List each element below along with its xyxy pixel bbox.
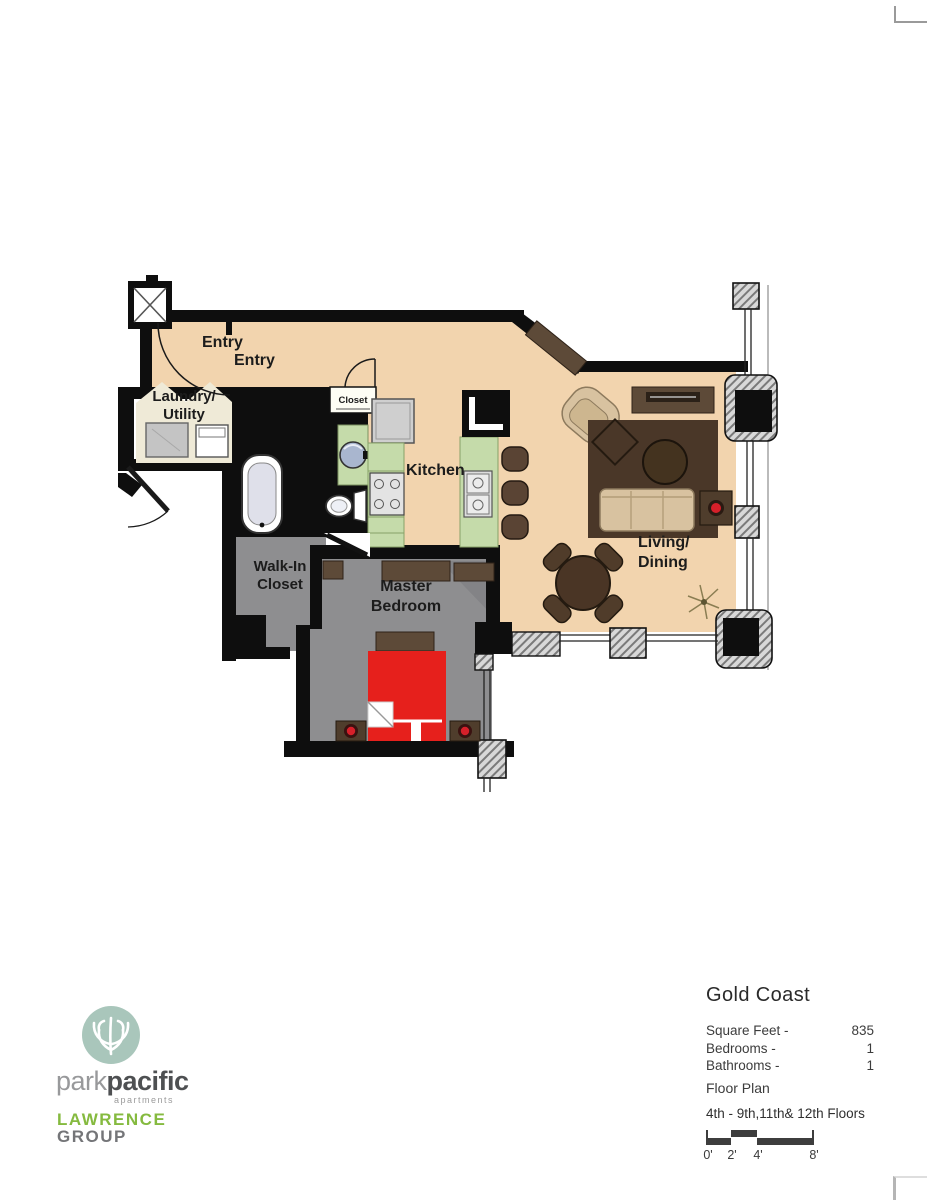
stat-value: 1 bbox=[866, 1040, 874, 1058]
stat-label: Bedrooms - bbox=[706, 1040, 776, 1058]
laundry-label-1: Laundry/ bbox=[152, 388, 216, 405]
dryer bbox=[196, 425, 228, 457]
dresser-left bbox=[323, 561, 343, 579]
corner-column-tr-core bbox=[735, 390, 772, 432]
floor-plan-drawing: Entry Entry Laundry/ Utility Closet Kitc… bbox=[118, 275, 778, 795]
pier-top bbox=[733, 283, 759, 309]
stat-row-bedrooms: Bedrooms - 1 bbox=[706, 1040, 874, 1058]
plan-stats: Square Feet - 835 Bedrooms - 1 Bathrooms… bbox=[706, 1022, 874, 1075]
entry-label-1: Entry bbox=[202, 334, 243, 351]
crop-mark-bottom-right bbox=[893, 1176, 927, 1200]
scale-label-0: 0' bbox=[703, 1148, 712, 1162]
corner-column-br-core bbox=[723, 618, 759, 656]
media-console bbox=[632, 387, 714, 413]
floors-label: 4th - 9th,11th& 12th Floors bbox=[706, 1106, 865, 1121]
washer bbox=[146, 423, 188, 457]
window-lines-right-lower bbox=[747, 538, 753, 612]
wall-entry-left bbox=[140, 322, 152, 390]
stat-label: Bathrooms - bbox=[706, 1057, 780, 1075]
bed-sheet-fold bbox=[411, 721, 421, 741]
bathtub bbox=[242, 455, 282, 533]
scale-segment-2-4 bbox=[731, 1130, 757, 1137]
dining-table bbox=[556, 556, 610, 610]
group-logo-text: GROUP bbox=[57, 1127, 127, 1147]
scale-label-4: 4' bbox=[753, 1148, 762, 1162]
scale-segment-0-2 bbox=[708, 1138, 731, 1145]
floor-plan-label: Floor Plan bbox=[706, 1080, 770, 1096]
stove bbox=[370, 473, 404, 515]
plan-title: Gold Coast bbox=[706, 984, 810, 1007]
brand-wordmark: parkpacific bbox=[56, 1066, 189, 1097]
pier-bay bbox=[478, 740, 506, 778]
pier-mid bbox=[735, 506, 759, 538]
crop-mark-top-right bbox=[894, 6, 927, 23]
scale-bar: 0' 2' 4' 8' bbox=[705, 1130, 835, 1164]
master-label-1: Master bbox=[380, 578, 432, 595]
living-label-1: Living/ bbox=[638, 534, 690, 551]
wall-bedroom-left bbox=[296, 625, 310, 741]
dresser-top-2 bbox=[454, 563, 494, 581]
window-lines-right-mid bbox=[747, 441, 753, 506]
scale-label-2: 2' bbox=[727, 1148, 736, 1162]
stat-value: 1 bbox=[866, 1057, 874, 1075]
walkin-label-2: Closet bbox=[257, 576, 303, 593]
end-table bbox=[700, 491, 732, 525]
window-lines-bottom-1 bbox=[560, 635, 610, 641]
wall-top bbox=[150, 310, 524, 322]
hall-closet-label: Closet bbox=[338, 395, 368, 406]
floor-plan-page: Entry Entry Laundry/ Utility Closet Kitc… bbox=[0, 0, 927, 1200]
pillow bbox=[368, 702, 393, 727]
pantry-unit bbox=[462, 390, 510, 437]
exterior-door-arc bbox=[128, 511, 168, 527]
pier-bottom bbox=[610, 628, 646, 658]
nightstand-left bbox=[336, 721, 366, 741]
laundry-label-2: Utility bbox=[163, 406, 205, 423]
brand-apartments-text: apartments bbox=[114, 1095, 174, 1105]
sofa bbox=[600, 489, 694, 531]
stat-label: Square Feet - bbox=[706, 1022, 789, 1040]
park-pacific-logo bbox=[82, 1006, 140, 1064]
refrigerator bbox=[372, 399, 414, 443]
scale-segment-4-8 bbox=[757, 1138, 812, 1145]
stat-value: 835 bbox=[851, 1022, 874, 1040]
stat-row-square-feet: Square Feet - 835 bbox=[706, 1022, 874, 1040]
island-sink bbox=[464, 471, 492, 517]
scale-tick-8 bbox=[812, 1130, 814, 1145]
bar-stools bbox=[502, 447, 528, 539]
entry-floor bbox=[152, 322, 580, 390]
nightstand-right bbox=[450, 721, 480, 741]
brand-pacific-text: pacific bbox=[107, 1066, 189, 1096]
master-label-2: Bedroom bbox=[371, 598, 441, 615]
stat-row-bathrooms: Bathrooms - 1 bbox=[706, 1057, 874, 1075]
column-x-box bbox=[128, 275, 172, 329]
wall-living-top bbox=[576, 361, 748, 372]
sill-bay-top bbox=[475, 654, 493, 670]
dresser-mid bbox=[376, 632, 434, 651]
coffee-table bbox=[643, 440, 687, 484]
living-label-2: Dining bbox=[638, 554, 688, 571]
wall-closet-bedroom-divider bbox=[310, 559, 322, 629]
window-lines-bay-lower bbox=[484, 778, 490, 792]
window-lines-bottom-2 bbox=[646, 635, 718, 641]
wall-laundry-left bbox=[118, 387, 134, 467]
kitchen-label: Kitchen bbox=[406, 462, 465, 479]
wall-closet-block bbox=[236, 615, 266, 653]
scale-label-8: 8' bbox=[809, 1148, 818, 1162]
wall-closet-left bbox=[222, 523, 236, 661]
sill-bottom-left bbox=[512, 632, 560, 656]
wall-corner-block-left bbox=[475, 622, 512, 654]
walkin-label-1: Walk-In bbox=[254, 558, 307, 575]
brand-park-text: park bbox=[56, 1066, 107, 1096]
entry-label-2: Entry bbox=[234, 352, 275, 369]
